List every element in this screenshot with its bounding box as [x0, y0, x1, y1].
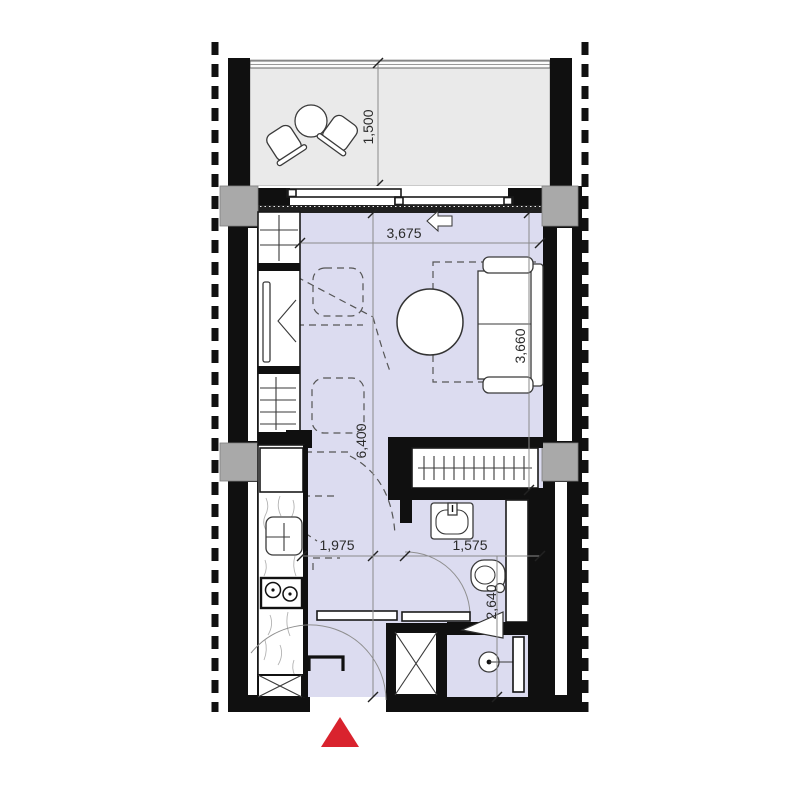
- entrance-marker: [321, 717, 359, 747]
- svg-text:1,975: 1,975: [319, 537, 354, 553]
- round-table: [397, 289, 463, 355]
- bathroom-vanity: [506, 500, 528, 622]
- entrance-opening: [310, 697, 386, 712]
- kitchen: [258, 445, 308, 697]
- stove-icon: [261, 578, 302, 608]
- hall-bath-wall: [388, 437, 412, 500]
- sliding-door: [250, 186, 544, 213]
- column-mid-right: [542, 443, 578, 481]
- svg-text:1,575: 1,575: [452, 537, 487, 553]
- shaft: [386, 623, 447, 703]
- bathroom-right-wall: [528, 488, 543, 697]
- wardrobe: [258, 212, 300, 445]
- sofa-armrest-top: [483, 257, 533, 273]
- hall-console: [317, 611, 397, 620]
- floor-plan: 1,500: [0, 0, 800, 800]
- sofa-backrest: [531, 264, 543, 386]
- balcony-wall-left: [228, 58, 250, 186]
- sliding-panel-1: [287, 189, 401, 197]
- column-top-right: [542, 186, 578, 226]
- svg-text:6,400: 6,400: [353, 423, 369, 458]
- svg-text:3,675: 3,675: [386, 225, 421, 241]
- bathroom-door-leaf: [402, 612, 470, 621]
- sofa-armrest-bottom: [483, 377, 533, 393]
- column-mid-left: [220, 443, 258, 481]
- counter-front-edge: [303, 445, 308, 697]
- svg-text:1,500: 1,500: [360, 109, 376, 144]
- coat-rail-niche: [412, 448, 538, 488]
- fridge: [260, 448, 303, 492]
- kitchen-shaft: [258, 675, 302, 697]
- washbasin-icon: [431, 503, 473, 539]
- svg-text:2,640: 2,640: [483, 584, 499, 619]
- svg-text:3,660: 3,660: [512, 328, 528, 363]
- sliding-panel-2: [395, 197, 513, 205]
- column-top-left: [220, 186, 258, 226]
- sofa: [478, 257, 543, 393]
- balcony-wall-right: [550, 58, 572, 186]
- balcony: 1,500: [228, 58, 572, 190]
- balcony-table: [295, 105, 327, 137]
- kitchen-sink-icon: [266, 517, 302, 555]
- bathroom-top-wall: [412, 488, 543, 500]
- shower-glass: [513, 637, 524, 692]
